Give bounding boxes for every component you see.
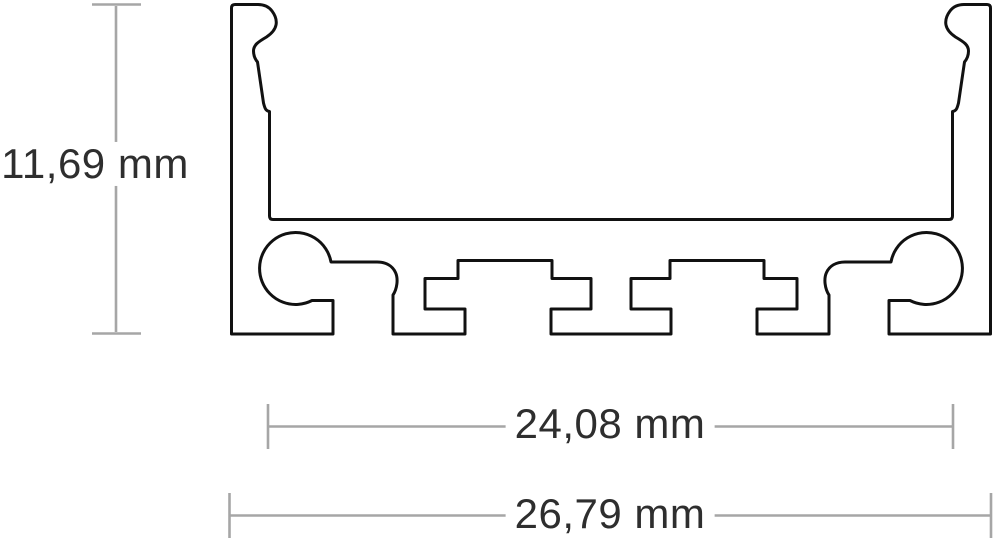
height-dimension-label: 11,69 mm [0, 142, 198, 186]
profile-outline-path [232, 5, 991, 335]
inner-width-dimension-label: 24,08 mm [506, 402, 715, 446]
technical-drawing [0, 0, 1000, 541]
profile-cross-section [232, 5, 991, 335]
diagram-canvas: 11,69 mm 24,08 mm 26,79 mm [0, 0, 1000, 541]
outer-width-dimension-label: 26,79 mm [506, 492, 715, 536]
